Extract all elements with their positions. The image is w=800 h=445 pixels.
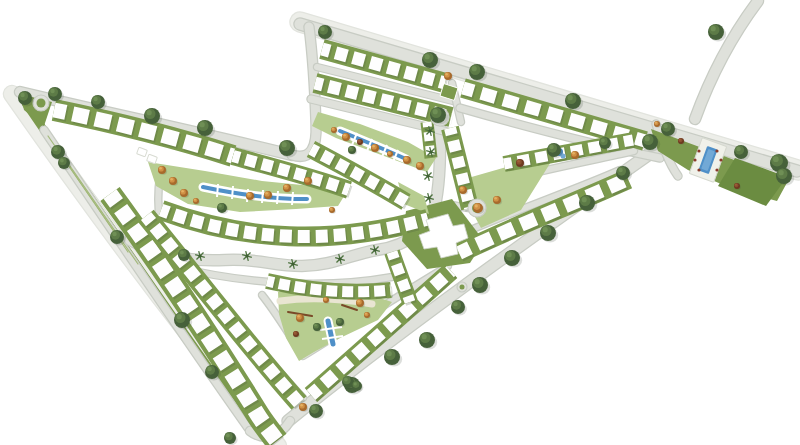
footbridge	[292, 192, 293, 205]
sun-lounger	[697, 149, 700, 152]
tree-icon-highlight	[324, 298, 326, 300]
tree-icon-highlight	[655, 122, 657, 124]
tree-icon-highlight	[779, 170, 784, 175]
tree-icon-highlight	[60, 159, 64, 163]
tree-icon-highlight	[358, 140, 360, 142]
tree-icon-highlight	[601, 139, 605, 143]
tree-icon-highlight	[507, 252, 512, 257]
tree-icon-highlight	[736, 147, 740, 151]
tree-icon-highlight	[349, 147, 352, 150]
tree-icon-highlight	[314, 324, 317, 327]
tree-icon-highlight	[282, 142, 287, 147]
tree-icon-highlight	[50, 89, 54, 93]
tree-icon-highlight	[645, 136, 650, 141]
roundabout-northwest-island	[37, 99, 46, 108]
palm-trunk	[291, 262, 294, 265]
palm-trunk	[338, 257, 341, 260]
tree-icon-highlight	[663, 124, 667, 128]
tree-icon-highlight	[735, 184, 737, 186]
tree-icon-highlight	[284, 185, 287, 188]
tree-icon-highlight	[445, 73, 448, 76]
master-plan-map	[0, 0, 800, 445]
tree-icon-highlight	[265, 192, 268, 195]
tree-icon-highlight	[247, 193, 250, 196]
tree-icon-highlight	[582, 197, 587, 202]
tree-icon-highlight	[494, 197, 497, 200]
tree-icon-highlight	[180, 251, 184, 255]
tree-icon-highlight	[372, 145, 375, 148]
tree-icon-highlight	[93, 97, 97, 101]
tree-icon-highlight	[332, 128, 334, 130]
tree-icon-highlight	[572, 152, 575, 155]
tree-icon-highlight	[417, 163, 420, 166]
tree-icon-highlight	[354, 382, 357, 385]
palm-trunk	[426, 174, 429, 177]
tree-icon-highlight	[311, 406, 315, 410]
palm-trunk	[427, 196, 430, 199]
tree-icon-highlight	[200, 122, 205, 127]
palm-trunk	[245, 254, 248, 257]
sun-lounger	[693, 158, 696, 161]
tree-icon-highlight	[475, 204, 478, 207]
footbridge	[277, 191, 278, 204]
tree-icon-highlight	[517, 160, 520, 163]
palm-tree-icon	[423, 171, 433, 181]
tree-icon-highlight	[20, 93, 24, 97]
tree-icon-highlight	[425, 54, 430, 59]
tree-icon-highlight	[177, 314, 182, 319]
tree-icon-highlight	[305, 178, 308, 181]
tree-icon-highlight	[422, 334, 427, 339]
tree-icon-highlight	[170, 178, 173, 181]
tree-icon-highlight	[404, 157, 407, 160]
tree-icon-highlight	[568, 95, 573, 100]
footbridge	[232, 186, 233, 199]
tree-icon-highlight	[549, 145, 553, 149]
sun-lounger	[715, 149, 718, 152]
tree-icon-highlight	[343, 134, 346, 137]
palm-trunk	[373, 248, 376, 251]
tree-icon-highlight	[433, 109, 438, 114]
site-plan-page	[0, 0, 800, 445]
tree-icon-highlight	[112, 232, 116, 236]
tree-icon-highlight	[773, 156, 779, 162]
tree-icon-highlight	[472, 66, 477, 71]
palm-trunk	[429, 150, 432, 153]
small-building	[137, 147, 148, 157]
tree-icon-highlight	[297, 315, 300, 318]
mini-circle-south-island	[460, 285, 465, 290]
tree-icon-highlight	[344, 378, 348, 382]
tree-icon-highlight	[460, 187, 463, 190]
top-right-stub	[695, 1, 758, 119]
tree-icon-highlight	[194, 199, 196, 201]
tree-icon-highlight	[357, 300, 360, 303]
tree-icon-highlight	[453, 302, 457, 306]
tree-icon-highlight	[53, 147, 57, 151]
tree-icon-highlight	[679, 139, 681, 141]
tree-icon-highlight	[388, 152, 390, 154]
palm-trunk	[198, 254, 201, 257]
sun-lounger	[715, 168, 718, 171]
tree-icon-highlight	[330, 208, 332, 210]
tree-icon-highlight	[207, 367, 211, 371]
tree-icon-highlight	[320, 27, 324, 31]
tree-icon-highlight	[159, 167, 162, 170]
tree-icon-highlight	[475, 279, 480, 284]
tree-icon-highlight	[387, 351, 392, 356]
tree-icon-highlight	[337, 319, 340, 322]
tree-icon-highlight	[147, 110, 152, 115]
palm-trunk	[428, 129, 431, 132]
sun-lounger	[697, 168, 700, 171]
tree-icon-highlight	[543, 227, 548, 232]
tree-icon-highlight	[294, 332, 296, 334]
tree-icon-highlight	[365, 313, 367, 315]
sun-lounger	[719, 158, 722, 161]
northwest-branch	[292, 27, 316, 156]
tree-icon-highlight	[711, 26, 716, 31]
tree-icon-highlight	[300, 404, 303, 407]
footbridge	[262, 190, 263, 203]
tree-icon-highlight	[226, 434, 230, 438]
tree-icon-highlight	[181, 190, 184, 193]
tree-icon-highlight	[618, 168, 622, 172]
tree-icon-highlight	[219, 204, 222, 207]
footbridge	[217, 184, 218, 197]
